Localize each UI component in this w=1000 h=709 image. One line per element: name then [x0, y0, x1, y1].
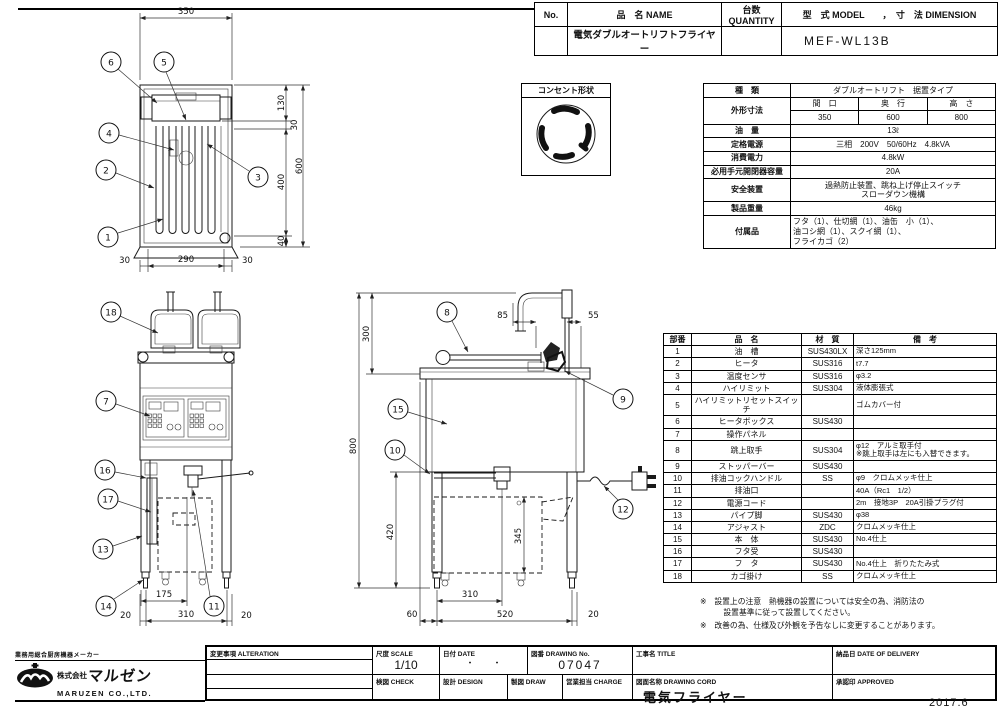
callout-5: 5 [161, 59, 167, 69]
drawing-name-cell: 図面名称 DRAWING CORD 電気フライヤー [632, 674, 832, 699]
part-no: 14 [664, 521, 692, 533]
part-material: SS [802, 570, 854, 582]
spec-table: 種 類 ダブルオートリフト 据置タイプ 外形寸法 間 口 奥 行 高 さ 350… [703, 83, 996, 249]
front-dim-20l: 20 [120, 611, 131, 621]
model-dim-header: 型 式 MODEL ， 寸 法 DIMENSION [782, 3, 998, 27]
spec-safety-label: 安全装置 [704, 179, 791, 202]
part-name: カゴ掛け [692, 570, 802, 582]
model-value: MEF-WL13B [782, 27, 998, 56]
side-dim-345: 345 [514, 528, 524, 544]
lift-mechanism [436, 290, 572, 372]
callout-3: 3 [255, 174, 261, 184]
callout-2: 2 [103, 167, 109, 177]
spec-dim-w-value: 350 [791, 111, 859, 125]
part-name: 跳上取手 [692, 440, 802, 460]
part-note: φ3.2 [854, 370, 997, 382]
issue-date: 2017.6 [929, 697, 969, 709]
part-note: ゴムカバー付 [854, 394, 997, 415]
part-name: 操作パネル [692, 428, 802, 440]
charge-label: 営業担当 CHARGE [563, 675, 632, 687]
part-material [802, 485, 854, 497]
part-name: ストッパーバー [692, 460, 802, 472]
part-row: 12 電源コード 2m 接地3P 20A引掛プラグ付 [664, 497, 997, 509]
side-dim-60: 60 [407, 610, 418, 620]
part-material: SUS304 [802, 382, 854, 394]
part-row: 13 パイプ脚 SUS430 φ38 [664, 509, 997, 521]
part-name: フタ受 [692, 546, 802, 558]
front-dim-20r: 20 [241, 611, 252, 621]
part-no: 9 [664, 460, 692, 472]
part-row: 1 油 槽 SUS430LX 深さ125mm [664, 346, 997, 358]
callout-17: 17 [102, 496, 113, 506]
part-name: 温度センサ [692, 370, 802, 382]
note-changes: ※ 改善の為、仕様及び外観を予告なしに変更することがあります。 [700, 621, 998, 632]
plan-dim-350: 350 [178, 7, 194, 17]
part-material [802, 394, 854, 415]
part-material: SUS430 [802, 558, 854, 570]
part-note: No.4仕上 折りたたみ式 [854, 558, 997, 570]
part-no: 7 [664, 428, 692, 440]
part-material: SUS430 [802, 416, 854, 428]
side-dim-310: 310 [462, 590, 478, 600]
part-name: パイプ脚 [692, 509, 802, 521]
part-row: 15 本 体 SUS430 No.4仕上 [664, 534, 997, 546]
spec-consumption-value: 4.8kW [791, 151, 996, 165]
part-no: 1 [664, 346, 692, 358]
plan-dim-30-top: 30 [290, 120, 300, 131]
part-note [854, 416, 997, 428]
part-note: φ12 アルミ取手付 ※跳上取手は左にも入替できます。 [854, 440, 997, 460]
spec-power-label: 定格電源 [704, 138, 791, 152]
date-value: ・ ・ [440, 659, 527, 668]
parts-h-name: 品 名 [692, 334, 802, 346]
company-prefix: 株式会社 [57, 670, 87, 681]
lift-handle-ball [436, 351, 450, 365]
part-material: SUS430 [802, 509, 854, 521]
callout-11: 11 [208, 603, 219, 613]
scale-cell: 尺度 SCALE 1/10 [372, 647, 439, 674]
part-name: アジャスト [692, 521, 802, 533]
side-callouts: 8 9 15 10 12 [385, 302, 633, 519]
part-note: t7.7 [854, 358, 997, 370]
part-row: 11 排油口 40A（Rc1 1/2） [664, 485, 997, 497]
spec-kind-value: ダブルオートリフト 据置タイプ [791, 84, 996, 98]
parts-h-no: 部番 [664, 334, 692, 346]
spec-dim-w-label: 間 口 [791, 97, 859, 111]
side-dim-55: 55 [588, 311, 599, 321]
front-dim-175: 175 [156, 590, 172, 600]
part-row: 8 跳上取手 SUS304 φ12 アルミ取手付 ※跳上取手は左にも入替できます… [664, 440, 997, 460]
part-name: 本 体 [692, 534, 802, 546]
approved-cell: 承認印 APPROVED [832, 674, 997, 699]
control-panel [146, 399, 226, 437]
part-row: 6 ヒータボックス SUS430 [664, 416, 997, 428]
design-cell: 設計 DESIGN [439, 674, 507, 699]
charge-cell: 営業担当 CHARGE [562, 674, 632, 699]
part-note [854, 546, 997, 558]
part-material: SUS430LX [802, 346, 854, 358]
part-name: ハイリミットリセットスイッチ [692, 394, 802, 415]
spec-weight-value: 46kg [791, 202, 996, 216]
date-cell: 日付 DATE ・ ・ [439, 647, 527, 674]
part-no: 6 [664, 416, 692, 428]
delivery-label: 納品日 DATE OF DELIVERY [833, 647, 997, 659]
part-material: SUS304 [802, 440, 854, 460]
part-no: 15 [664, 534, 692, 546]
spec-oil-label: 油 量 [704, 124, 791, 138]
spec-breaker-label: 必用手元開閉器容量 [704, 165, 791, 179]
callout-14: 14 [100, 603, 112, 613]
part-material [802, 497, 854, 509]
part-name: 排油口 [692, 485, 802, 497]
heater-coils [156, 126, 221, 234]
maruzen-logo: 業務用総合厨房機器メーカー 株式会社 マルゼン MARUZEN CO.,LTD. [15, 650, 205, 698]
check-cell: 検図 CHECK [372, 674, 439, 699]
drawing-views: 350 130 30 400 40 600 30 290 30 [0, 0, 660, 645]
callout-9: 9 [620, 396, 626, 406]
part-material: SUS430 [802, 534, 854, 546]
spec-dims-label: 外形寸法 [704, 97, 791, 124]
part-name: 油 槽 [692, 346, 802, 358]
draw-cell: 製図 DRAW [507, 674, 562, 699]
callout-15: 15 [392, 406, 403, 416]
part-note: φ38 [854, 509, 997, 521]
spec-dim-d-label: 奥 行 [859, 97, 927, 111]
company-name-en: MARUZEN CO.,LTD. [57, 689, 205, 698]
part-name: ハイリミット [692, 382, 802, 394]
plan-dim-290: 290 [178, 255, 194, 265]
part-material: SUS316 [802, 370, 854, 382]
spec-oil-value: 13ℓ [791, 124, 996, 138]
part-material [802, 428, 854, 440]
design-label: 設計 DESIGN [440, 675, 507, 687]
plan-dim-130: 130 [277, 95, 287, 111]
plan-dim-400: 400 [277, 174, 287, 190]
plan-dim-600: 600 [295, 158, 305, 174]
part-row: 2 ヒータ SUS316 t7.7 [664, 358, 997, 370]
part-name: フ タ [692, 558, 802, 570]
part-no: 11 [664, 485, 692, 497]
parts-h-mat: 材 質 [802, 334, 854, 346]
part-row: 14 アジャスト ZDC クロムメッキ仕上 [664, 521, 997, 533]
title-block: 変更事項 ALTERATION 尺度 SCALE 1/10 日付 DATE ・ … [205, 645, 997, 701]
fry-baskets [151, 292, 240, 348]
part-name: ヒータボックス [692, 416, 802, 428]
callout-6: 6 [108, 59, 114, 69]
callout-18: 18 [105, 309, 117, 319]
callout-8: 8 [444, 309, 450, 319]
sheet-bottom-border [15, 700, 205, 702]
side-dim-420: 420 [386, 524, 396, 540]
maruzen-logo-icon [15, 662, 55, 688]
part-no: 3 [664, 370, 692, 382]
plan-dim-30r: 30 [242, 256, 253, 266]
part-row: 5 ハイリミットリセットスイッチ ゴムカバー付 [664, 394, 997, 415]
power-cord [577, 466, 656, 490]
plan-view: 350 130 30 400 40 600 30 290 30 [96, 7, 310, 272]
check-label: 検図 CHECK [373, 675, 439, 687]
drawing-sheet: No. 品 名 NAME 台数 QUANTITY 型 式 MODEL ， 寸 法… [0, 0, 1000, 709]
spec-accessories-value: フタ（1）、仕切網（1）、油缶 小（1）、 油コシ網（1）、スクイ網（1）、 フ… [791, 215, 996, 248]
part-row: 7 操作パネル [664, 428, 997, 440]
company-name: マルゼン [87, 665, 153, 686]
draw-label: 製図 DRAW [508, 675, 562, 687]
part-row: 9 ストッパーバー SUS430 [664, 460, 997, 472]
part-note: クロムメッキ仕上 [854, 570, 997, 582]
part-no: 8 [664, 440, 692, 460]
delivery-cell: 納品日 DATE OF DELIVERY [832, 647, 997, 674]
part-no: 13 [664, 509, 692, 521]
part-material: ZDC [802, 521, 854, 533]
scale-value: 1/10 [373, 659, 439, 671]
part-row: 4 ハイリミット SUS304 液体膨張式 [664, 382, 997, 394]
part-note: クロムメッキ仕上 [854, 521, 997, 533]
part-no: 12 [664, 497, 692, 509]
qty-value [722, 27, 782, 56]
part-no: 2 [664, 358, 692, 370]
callout-16: 16 [99, 467, 111, 477]
part-material: SS [802, 473, 854, 485]
spec-breaker-value: 20A [791, 165, 996, 179]
high-limit-bulb [170, 140, 178, 156]
part-material: SUS316 [802, 358, 854, 370]
side-dim-20: 20 [588, 610, 599, 620]
callout-1: 1 [105, 234, 111, 244]
alteration-cell: 変更事項 ALTERATION [207, 647, 372, 699]
notes: ※ 設置上の注意 熱機器の設置については安全の為、消防法の 設置基準に従って設置… [700, 597, 998, 635]
part-no: 17 [664, 558, 692, 570]
side-dim-800: 800 [349, 438, 359, 454]
front-dim-310: 310 [178, 610, 194, 620]
side-view: 300 85 55 800 420 345 310 [349, 290, 656, 626]
parts-table: 部番 品 名 材 質 備 考 1 油 槽 SUS430LX 深さ125mm 2 … [663, 333, 997, 583]
project-title-label: 工事名 TITLE [633, 647, 832, 659]
drain-hole [220, 233, 230, 243]
part-note: 2m 接地3P 20A引掛プラグ付 [854, 497, 997, 509]
drawing-name-label: 図面名称 DRAWING CORD [633, 675, 832, 687]
part-note: 深さ125mm [854, 346, 997, 358]
logo-tagline: 業務用総合厨房機器メーカー [15, 650, 205, 661]
callout-13: 13 [97, 546, 108, 556]
spec-power-value: 三相 200V 50/60Hz 4.8kVA [791, 138, 996, 152]
alteration-label: 変更事項 ALTERATION [207, 647, 372, 660]
callout-4: 4 [106, 130, 112, 140]
part-no: 18 [664, 570, 692, 582]
part-note: No.4仕上 [854, 534, 997, 546]
drawing-name-value: 電気フライヤー [633, 687, 832, 706]
parts-h-note: 備 考 [854, 334, 997, 346]
part-name: ヒータ [692, 358, 802, 370]
qty-header: 台数 QUANTITY [722, 3, 782, 27]
part-row: 10 排油コックハンドル SS φ9 クロムメッキ仕上 [664, 473, 997, 485]
part-row: 17 フ タ SUS430 No.4仕上 折りたたみ式 [664, 558, 997, 570]
part-material: SUS430 [802, 546, 854, 558]
plan-dim-30l: 30 [119, 256, 130, 266]
part-row: 18 カゴ掛け SS クロムメッキ仕上 [664, 570, 997, 582]
oil-can-dashed-side [434, 497, 542, 573]
oil-can-dashed [158, 498, 212, 572]
part-note: φ9 クロムメッキ仕上 [854, 473, 997, 485]
plan-dim-40: 40 [277, 236, 287, 247]
callout-12: 12 [617, 506, 628, 516]
part-name: 電源コード [692, 497, 802, 509]
spec-dim-h-label: 高 さ [927, 97, 995, 111]
side-dim-300: 300 [362, 326, 372, 342]
side-dim-85: 85 [497, 311, 508, 321]
spec-dim-h-value: 800 [927, 111, 995, 125]
project-title-cell: 工事名 TITLE [632, 647, 832, 674]
part-note: 40A（Rc1 1/2） [854, 485, 997, 497]
part-name: 排油コックハンドル [692, 473, 802, 485]
front-callouts: 18 7 16 17 13 14 11 [93, 302, 224, 616]
spec-accessories-label: 付属品 [704, 215, 791, 248]
spec-safety-value: 過熱防止装置、跳ね上げ停止スイッチ スローダウン機構 [791, 179, 996, 202]
part-row: 16 フタ受 SUS430 [664, 546, 997, 558]
side-dim-520: 520 [497, 610, 513, 620]
part-note: 液体膨張式 [854, 382, 997, 394]
part-note [854, 460, 997, 472]
front-view: 175 20 310 20 18 7 16 17 13 [93, 292, 253, 626]
spec-weight-label: 製品重量 [704, 202, 791, 216]
spec-dim-d-value: 600 [859, 111, 927, 125]
callout-10: 10 [389, 447, 401, 457]
part-no: 16 [664, 546, 692, 558]
part-no: 4 [664, 382, 692, 394]
part-no: 10 [664, 473, 692, 485]
temp-sensor [179, 151, 193, 165]
lid-holder [145, 463, 157, 475]
spec-consumption-label: 消費電力 [704, 151, 791, 165]
spec-kind-label: 種 類 [704, 84, 791, 98]
part-no: 5 [664, 394, 692, 415]
callout-7: 7 [103, 398, 109, 408]
drawing-no-value: 07047 [528, 659, 632, 671]
note-installation: ※ 設置上の注意 熱機器の設置については安全の為、消防法の 設置基準に従って設置… [700, 597, 998, 618]
part-row: 3 温度センサ SUS316 φ3.2 [664, 370, 997, 382]
part-note [854, 428, 997, 440]
part-material: SUS430 [802, 460, 854, 472]
approved-label: 承認印 APPROVED [833, 675, 997, 687]
drawing-no-cell: 図番 DRAWING No. 07047 [527, 647, 632, 674]
